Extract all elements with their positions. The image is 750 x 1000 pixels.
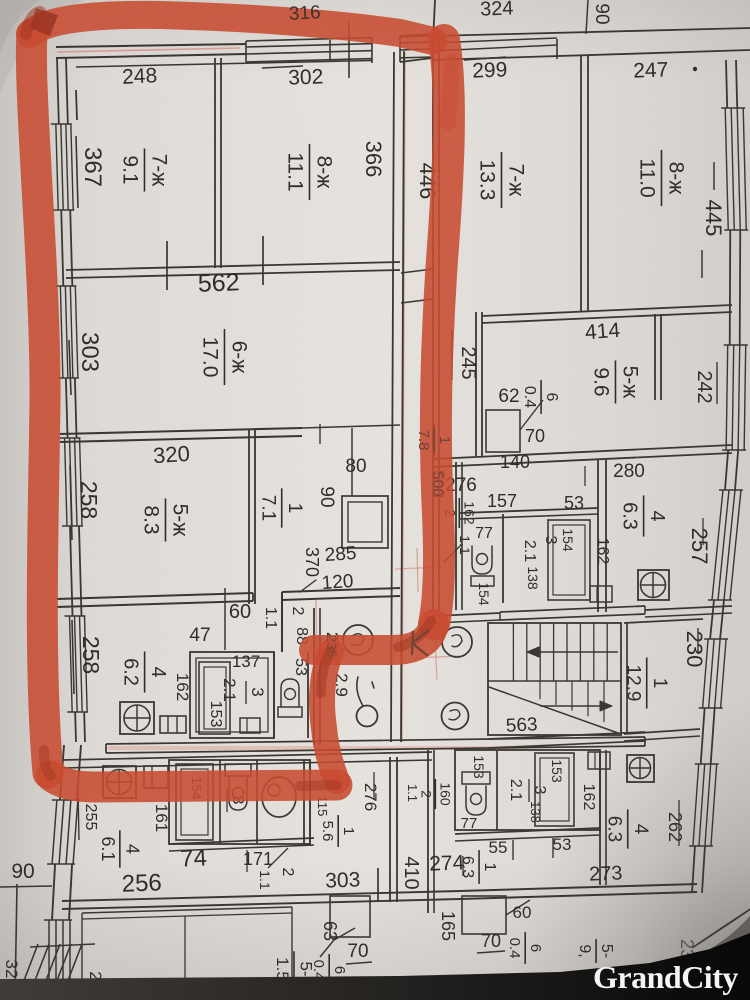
svg-text:GrandCity: GrandCity [593,959,738,995]
